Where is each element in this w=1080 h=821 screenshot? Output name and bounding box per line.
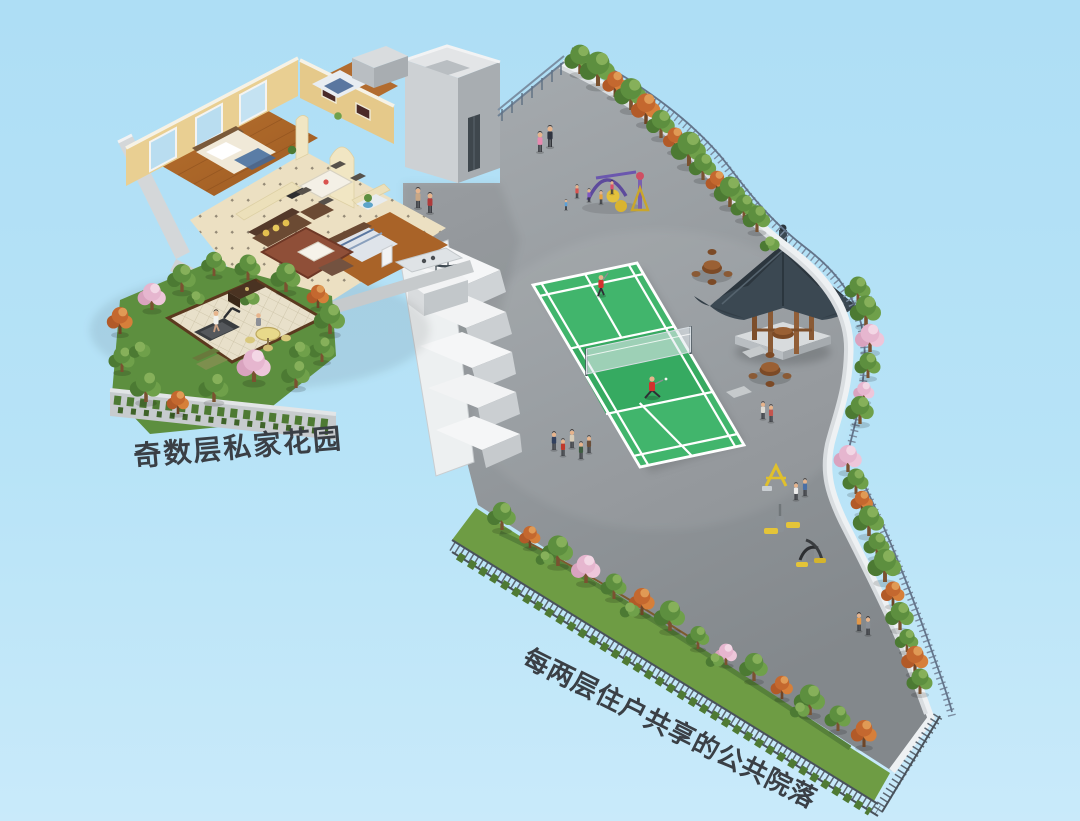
illustration-canvas [0,0,1080,821]
roof-garden-rendering: 奇数层私家花园 每两层住户共享的公共院落 [0,0,1080,821]
elevator-core [405,46,500,183]
